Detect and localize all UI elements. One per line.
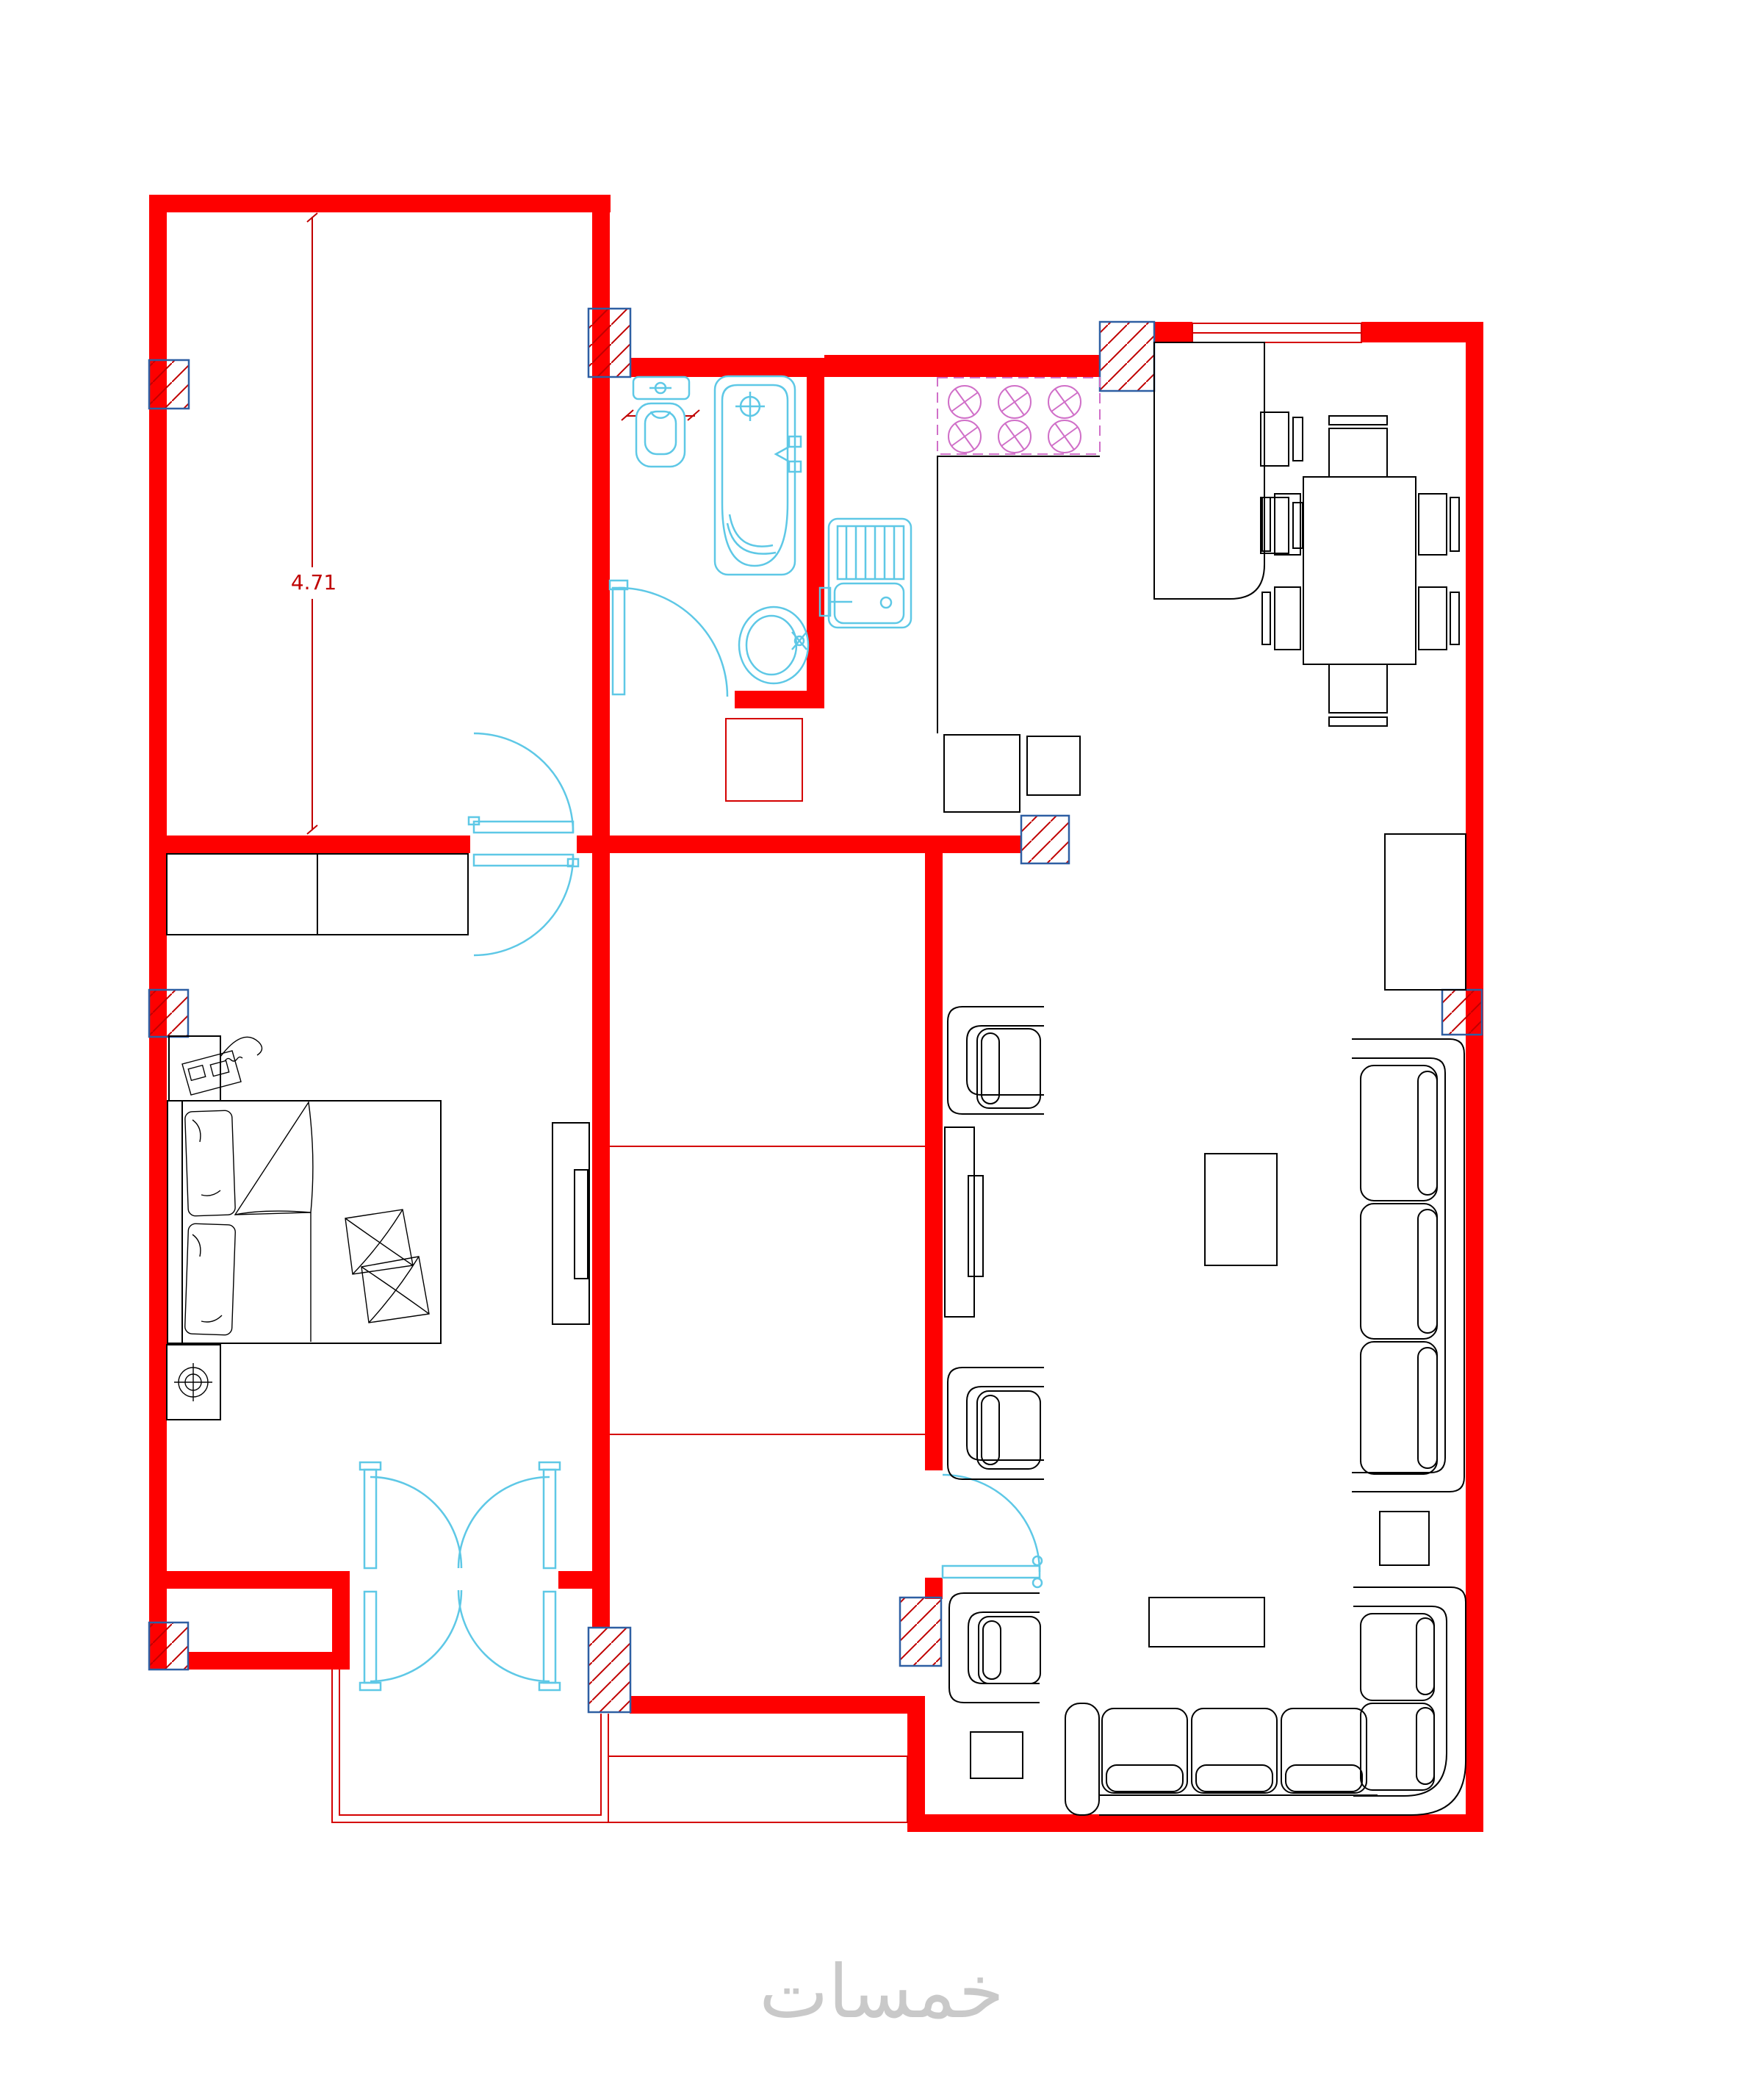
wall-balcony-left: [332, 1571, 350, 1670]
column-left-top: [149, 360, 189, 409]
buffet-cabinet: [1385, 834, 1466, 990]
bar-stool: [1261, 412, 1303, 466]
wall-right-exterior: [1466, 322, 1483, 1832]
table-lamp: [174, 1363, 212, 1401]
coffee-table: [1149, 1598, 1264, 1647]
armchair-tv-upper: [948, 1007, 1044, 1114]
watermark-text: خمسات: [759, 1949, 1004, 2035]
wall-bedroom-bottom-left: [167, 1571, 350, 1589]
wall-middleroom-door-jog: [925, 1578, 943, 1599]
wall-topleft-room-right: [592, 195, 610, 836]
bathroom-door: [610, 581, 727, 697]
wall-rooms-divider-left: [149, 836, 470, 853]
wall-bottomleft-notch: [188, 1652, 332, 1670]
bathtub: [715, 376, 801, 575]
balcony-french-doors: [360, 1462, 560, 1690]
middle-room-door: [943, 1475, 1042, 1587]
nightstand-top: [169, 1036, 262, 1101]
dining-set: [1262, 416, 1459, 726]
pillow: [185, 1110, 236, 1216]
wall-bath-kitchen: [807, 358, 824, 708]
column-entry-left: [588, 1628, 630, 1712]
middle-room-bed-lines: [610, 1146, 925, 1434]
dining-chair-right-1: [1419, 494, 1459, 555]
column-kitchen-bottom: [1021, 816, 1069, 863]
pillow: [184, 1223, 235, 1335]
nightstand-bottom: [167, 1345, 220, 1420]
column-entry-right: [900, 1598, 941, 1666]
wall-bedroom-middle: [592, 836, 610, 1628]
blanket-fold: [235, 1102, 313, 1342]
washbasin: [739, 607, 808, 683]
armchair-tv-lower: [948, 1368, 1044, 1479]
tv-console: [945, 1127, 983, 1317]
bedroom-closet: [167, 854, 468, 935]
column-kitchen-top: [1100, 322, 1154, 391]
decor-pillow: [345, 1210, 413, 1274]
kitchen-counter: [937, 456, 1100, 812]
dim-text-4-71: 4.71: [291, 570, 336, 594]
double-bed: [168, 1101, 441, 1343]
side-table-right-wall: [1380, 1512, 1429, 1565]
center-table: [1205, 1154, 1277, 1265]
dimension-room-height: 4.71: [291, 213, 336, 834]
wall-dining-top-right: [1361, 322, 1483, 342]
floor-plan-drawing: 4.71 0.43: [0, 0, 1764, 2095]
column-right-wall: [1442, 990, 1482, 1035]
wall-dining-top-left: [1154, 322, 1192, 342]
decor-pillow: [361, 1257, 429, 1323]
shaft-duct: [726, 719, 802, 801]
stove: [937, 378, 1100, 454]
wall-bedroom-bottom-right: [558, 1571, 592, 1589]
armchair-entry: [949, 1593, 1040, 1703]
wall-bath-bottom: [735, 691, 824, 708]
wall-entry-bottom: [630, 1696, 907, 1714]
stove-burners: [948, 386, 1081, 453]
column-bath-corner: [588, 309, 630, 377]
wall-rooms-divider-right: [577, 836, 1021, 853]
column-left-middle: [149, 990, 188, 1037]
side-table-entry: [971, 1732, 1023, 1778]
toilet: [633, 377, 689, 467]
dining-window: [1192, 323, 1361, 342]
dining-table: [1303, 477, 1416, 664]
sofa-right-wall: [1352, 1039, 1464, 1492]
telephone: [182, 1037, 262, 1095]
wall-living-bottom: [925, 1814, 1483, 1832]
dining-chair-top: [1329, 416, 1387, 477]
dining-chair-right-2: [1419, 587, 1459, 650]
kitchen-fridge: [944, 735, 1020, 812]
bar-stool: [1261, 497, 1303, 553]
dining-chair-left-2: [1262, 587, 1300, 650]
sofa-bottom: [1065, 1703, 1378, 1815]
kitchen-cabinet: [1027, 736, 1080, 795]
wall-kitchen-top: [824, 355, 1100, 377]
wall-left-exterior: [149, 195, 167, 1670]
balcony-outline: [332, 1670, 608, 1822]
kitchen-sink: [820, 519, 911, 628]
wall-topleft-room-top: [149, 195, 611, 212]
wall-middle-living: [925, 836, 943, 1470]
wall-entry-vertical: [907, 1696, 925, 1832]
topleft-room-door: [469, 733, 578, 955]
sofa-corner-section: [1353, 1587, 1466, 1815]
kitchen-peninsula: [1154, 342, 1303, 599]
column-left-bottom: [149, 1623, 188, 1670]
floor-plan-page: 4.71 0.43: [0, 0, 1764, 2095]
wall-bath-top: [630, 358, 824, 377]
dining-chair-bottom: [1329, 664, 1387, 726]
porch-strip-outline: [608, 1756, 907, 1822]
walls: [149, 195, 1483, 1832]
bedroom-wardrobe: [552, 1123, 589, 1324]
